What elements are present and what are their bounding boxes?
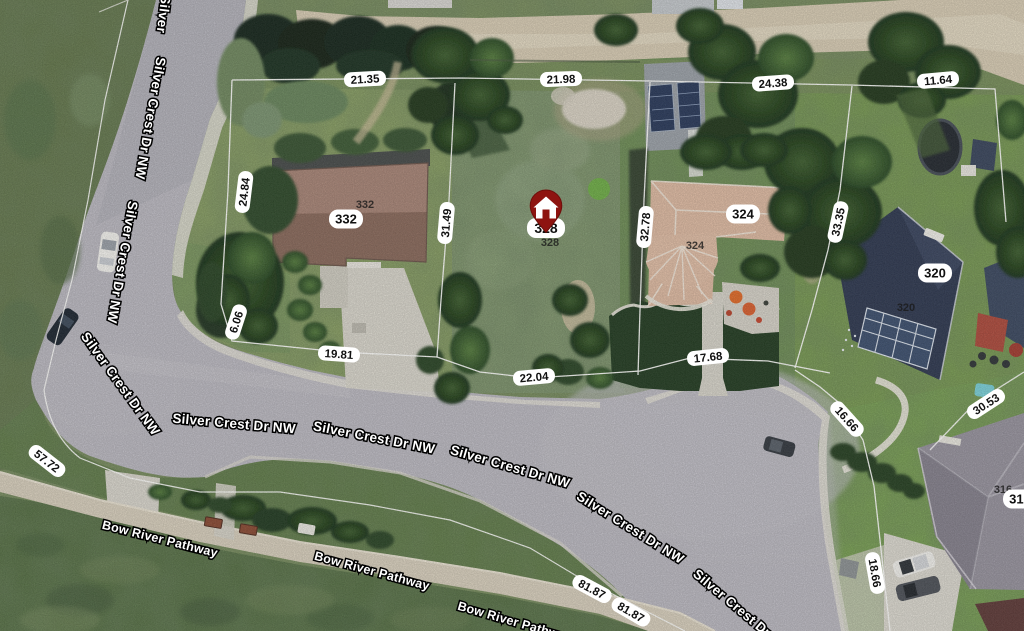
svg-text:11.64: 11.64 xyxy=(924,74,954,88)
svg-text:19.81: 19.81 xyxy=(324,348,354,362)
svg-text:328: 328 xyxy=(541,237,559,249)
svg-text:24.38: 24.38 xyxy=(758,77,788,91)
svg-text:332: 332 xyxy=(356,199,374,211)
svg-text:316: 316 xyxy=(1009,492,1024,507)
svg-text:22.04: 22.04 xyxy=(519,371,549,386)
svg-text:324: 324 xyxy=(732,207,754,222)
svg-text:21.98: 21.98 xyxy=(546,74,576,87)
svg-text:320: 320 xyxy=(924,266,946,281)
svg-text:324: 324 xyxy=(686,240,705,252)
svg-text:320: 320 xyxy=(897,302,915,314)
svg-text:32.78: 32.78 xyxy=(639,212,654,242)
svg-text:21.35: 21.35 xyxy=(350,73,380,87)
svg-text:332: 332 xyxy=(335,212,357,227)
svg-text:31.49: 31.49 xyxy=(440,208,454,238)
